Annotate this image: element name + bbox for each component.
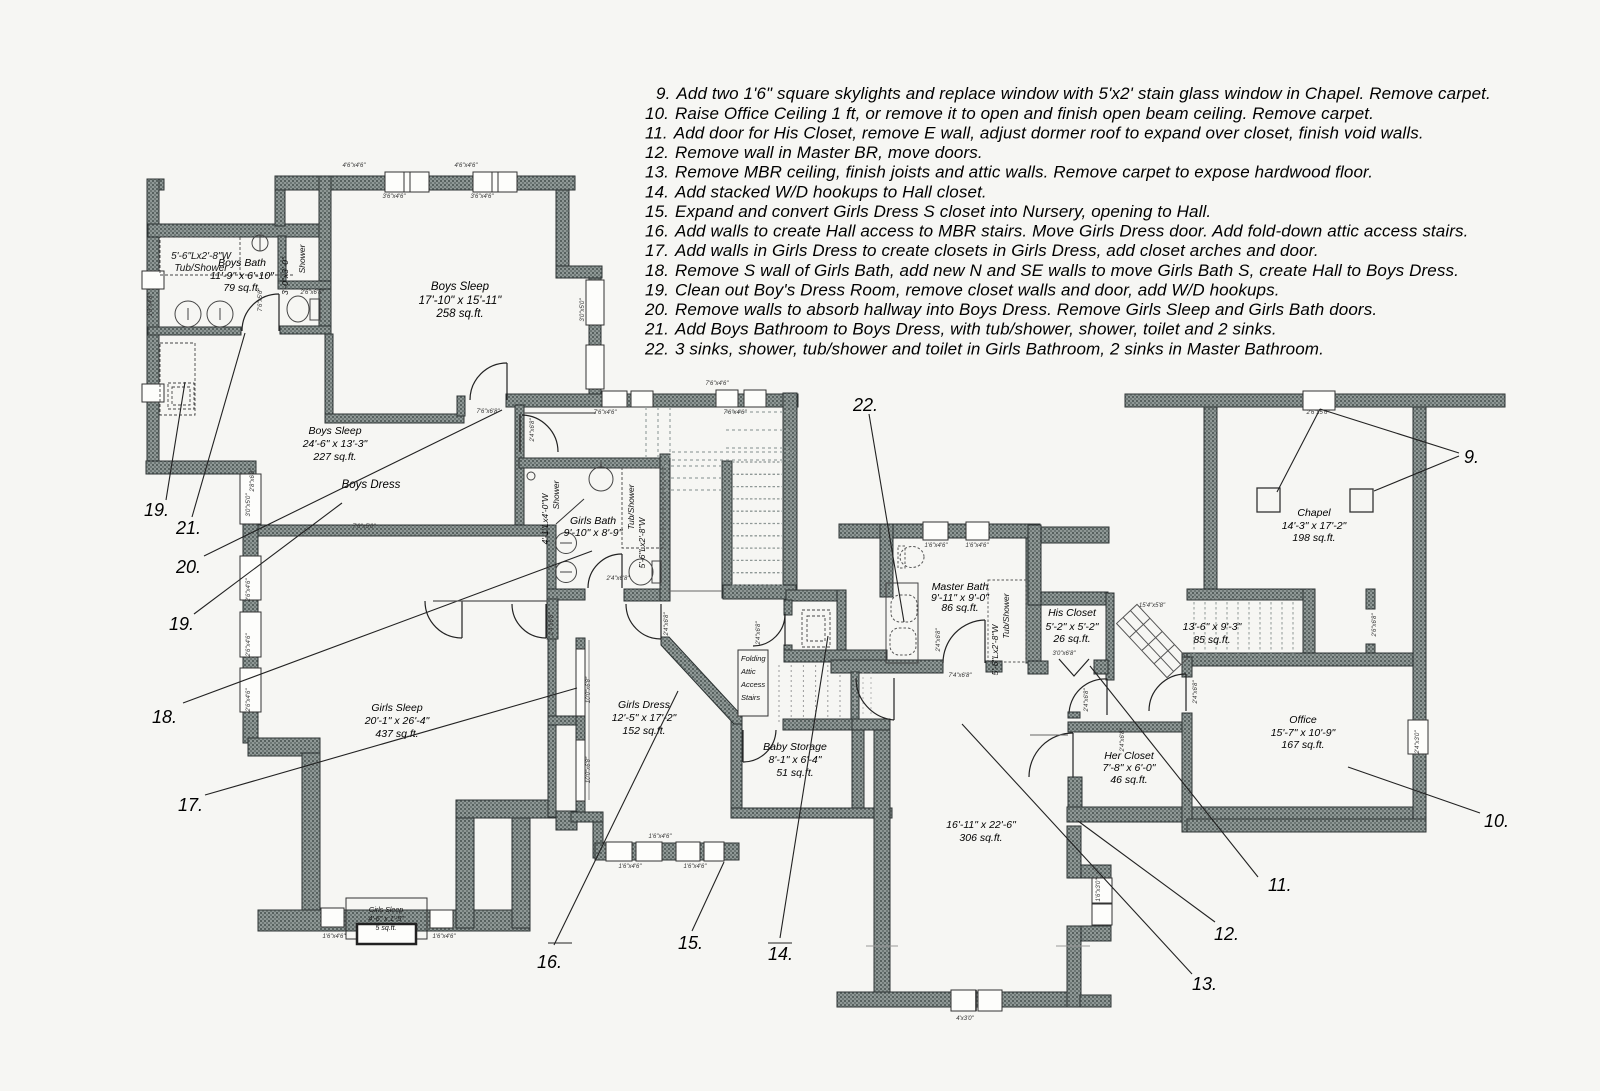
svg-text:7'6"x4'6": 7'6"x4'6" [706, 381, 730, 387]
svg-text:437 sq.ft.: 437 sq.ft. [375, 728, 418, 740]
svg-text:1'6"x3'0": 1'6"x3'0" [1096, 878, 1102, 902]
svg-text:15.Expand and convert Girls Dr: 15.Expand and convert Girls Dress S clos… [645, 202, 1211, 221]
svg-text:85 sq.ft.: 85 sq.ft. [1193, 634, 1230, 646]
svg-text:152 sq.ft.: 152 sq.ft. [622, 725, 665, 737]
svg-text:10.Raise Office Ceiling 1 ft,: 10.Raise Office Ceiling 1 ft, or remove … [645, 104, 1374, 123]
svg-text:19.: 19. [169, 614, 194, 634]
svg-text:1'6"x4'6": 1'6"x4'6" [433, 934, 457, 940]
svg-text:18.: 18. [152, 707, 177, 727]
svg-text:3'0"x5'0": 3'0"x5'0" [580, 298, 586, 322]
svg-text:16.: 16. [537, 952, 562, 972]
svg-text:16'-11" x 22'-6": 16'-11" x 22'-6" [946, 819, 1017, 831]
svg-text:2'4"x6'8": 2'4"x6'8" [549, 612, 555, 637]
svg-text:2'8"x6'8": 2'8"x6'8" [250, 468, 256, 493]
svg-text:Her Closet: Her Closet [1104, 750, 1155, 762]
svg-text:22.: 22. [852, 395, 878, 415]
svg-text:15'-7" x 10'-9": 15'-7" x 10'-9" [1271, 727, 1337, 739]
svg-text:7'6"x5'0": 7'6"x5'0" [353, 524, 377, 530]
svg-text:4'6"x4'6": 4'6"x4'6" [343, 163, 367, 169]
svg-text:Shower: Shower [297, 243, 307, 273]
svg-text:14.Add stacked W/D hookups to: 14.Add stacked W/D hookups to Hall close… [645, 182, 987, 201]
svg-text:20.: 20. [175, 557, 201, 577]
svg-text:13.: 13. [1192, 974, 1217, 994]
svg-text:21.: 21. [175, 518, 201, 538]
svg-text:7'6"x5'6": 7'6"x5'6" [258, 288, 264, 312]
svg-text:2'6"x4'6": 2'6"x4'6" [246, 633, 252, 658]
svg-text:1'6"x4'6": 1'6"x4'6" [925, 543, 949, 549]
svg-text:21.Add Boys Bathroom to Boys D: 21.Add Boys Bathroom to Boys Dress, with… [644, 320, 1277, 339]
svg-text:1'6"x4'6": 1'6"x4'6" [323, 934, 347, 940]
svg-text:2'6"x4'6": 2'6"x4'6" [246, 578, 252, 603]
svg-text:Tub/Shower: Tub/Shower [1001, 592, 1011, 638]
svg-text:Girls Dress: Girls Dress [618, 699, 671, 711]
svg-text:Shower: Shower [551, 479, 561, 509]
svg-text:1'6"x4'6": 1'6"x4'6" [649, 834, 673, 840]
svg-text:2'6"x6'8": 2'6"x6'8" [300, 290, 325, 296]
svg-text:86 sq.ft.: 86 sq.ft. [941, 602, 978, 614]
svg-text:2'6"x4'6": 2'6"x4'6" [246, 688, 252, 713]
svg-text:14.: 14. [768, 944, 793, 964]
svg-text:Girls Sleep: Girls Sleep [371, 702, 423, 714]
svg-text:20'-1" x 26'-4": 20'-1" x 26'-4" [364, 715, 431, 727]
svg-text:2'4"x6'8": 2'4"x6'8" [664, 612, 670, 637]
svg-text:19.: 19. [144, 500, 169, 520]
svg-text:Girls Sleep: Girls Sleep [369, 907, 403, 914]
svg-text:2'4"x6'8": 2'4"x6'8" [1084, 688, 1090, 713]
svg-text:Office: Office [1289, 714, 1317, 726]
svg-text:3'0"x6'8": 3'0"x6'8" [1053, 651, 1077, 657]
svg-text:258 sq.ft.: 258 sq.ft. [435, 308, 483, 320]
svg-text:1'6"x4'6": 1'6"x4'6" [684, 864, 708, 870]
svg-text:Boys Dress: Boys Dress [342, 479, 401, 491]
svg-text:9.: 9. [1464, 447, 1479, 467]
svg-text:17.Add walls in Girls Dress to: 17.Add walls in Girls Dress to create cl… [645, 241, 1319, 260]
svg-text:Tub/Shower: Tub/Shower [626, 483, 636, 529]
svg-text:167 sq.ft.: 167 sq.ft. [1281, 739, 1324, 751]
svg-text:227 sq.ft.: 227 sq.ft. [312, 451, 356, 463]
svg-text:Tub/Shower: Tub/Shower [174, 263, 228, 274]
svg-text:198 sq.ft.: 198 sq.ft. [1292, 532, 1335, 544]
svg-text:2'4"x6'8": 2'4"x6'8" [1193, 680, 1199, 705]
svg-text:Access: Access [740, 680, 765, 689]
svg-text:3'0"x5'0": 3'0"x5'0" [246, 493, 252, 517]
svg-text:7'6"x4'6": 7'6"x4'6" [594, 410, 618, 416]
svg-text:9'-10" x 8'-9": 9'-10" x 8'-9" [564, 527, 624, 539]
svg-text:13.Remove MBR ceiling, finish: 13.Remove MBR ceiling, finish joists and… [645, 163, 1373, 182]
svg-text:9.Add two 1'6" square skylight: 9.Add two 1'6" square skylights and repl… [656, 84, 1491, 103]
svg-text:15.: 15. [678, 933, 703, 953]
svg-text:2'4"x6'8": 2'4"x6'8" [606, 576, 631, 582]
svg-text:24'-6" x 13'-3": 24'-6" x 13'-3" [302, 438, 369, 450]
svg-text:3'6"x4'6": 3'6"x4'6" [471, 194, 495, 200]
svg-text:16.Add walls to create Hall ac: 16.Add walls to create Hall access to MB… [645, 222, 1469, 241]
svg-text:5'-6"Lx2'-8"W: 5'-6"Lx2'-8"W [171, 251, 232, 262]
svg-text:7'-8" x 6'-0": 7'-8" x 6'-0" [1103, 762, 1157, 774]
svg-text:4'-1"Lx4'-0"W: 4'-1"Lx4'-0"W [540, 493, 550, 545]
svg-text:1'6"x4'6": 1'6"x4'6" [148, 293, 154, 317]
svg-text:26 sq.ft.: 26 sq.ft. [1052, 633, 1090, 645]
svg-text:Chapel: Chapel [1297, 507, 1331, 519]
svg-text:19.Clean out Boy's Dress Room,: 19.Clean out Boy's Dress Room, remove cl… [645, 280, 1280, 299]
svg-text:11.Add door for His Closet, re: 11.Add door for His Closet, remove E wal… [645, 123, 1424, 142]
svg-text:5'-6"Lx2'-8"W: 5'-6"Lx2'-8"W [990, 624, 1000, 676]
svg-text:Attic: Attic [740, 667, 756, 676]
svg-text:22.3 sinks, shower, tub/shower: 22.3 sinks, shower, tub/shower and toile… [644, 339, 1324, 358]
svg-text:7'6"x4'6": 7'6"x4'6" [724, 410, 748, 416]
svg-text:17'-10" x 15'-11": 17'-10" x 15'-11" [419, 295, 503, 307]
svg-text:3'-0"x3'-0": 3'-0"x3'-0" [280, 256, 290, 295]
svg-text:17.: 17. [178, 795, 203, 815]
svg-text:Boys Sleep: Boys Sleep [431, 281, 490, 293]
svg-text:8'-1" x 6'-4": 8'-1" x 6'-4" [769, 754, 823, 766]
svg-text:His Closet: His Closet [1048, 607, 1097, 619]
svg-text:5 sq.ft.: 5 sq.ft. [375, 925, 396, 932]
svg-text:Folding: Folding [741, 654, 766, 663]
svg-text:2'4"x3'0": 2'4"x3'0" [1415, 730, 1421, 755]
svg-text:Stairs: Stairs [741, 693, 760, 702]
svg-text:4'6"x4'6": 4'6"x4'6" [455, 163, 479, 169]
svg-text:18.Remove S wall of Girls Bath: 18.Remove S wall of Girls Bath, add new … [645, 261, 1459, 280]
svg-text:15'4"x5'8": 15'4"x5'8" [1139, 603, 1166, 609]
svg-text:Baby Storage: Baby Storage [763, 741, 827, 753]
svg-text:306 sq.ft.: 306 sq.ft. [959, 832, 1002, 844]
svg-text:5'-2" x 5'-2": 5'-2" x 5'-2" [1046, 621, 1100, 633]
svg-text:Boys Sleep: Boys Sleep [308, 425, 361, 437]
svg-text:13'-6" x 9'-3": 13'-6" x 9'-3" [1183, 621, 1243, 633]
svg-text:46 sq.ft.: 46 sq.ft. [1110, 774, 1147, 786]
svg-text:2'4"x6'8": 2'4"x6'8" [936, 628, 942, 653]
svg-text:3'6"x4'6": 3'6"x4'6" [383, 194, 407, 200]
svg-text:2'6"x6'8": 2'6"x6'8" [1372, 613, 1378, 638]
svg-text:12.: 12. [1214, 924, 1239, 944]
svg-text:11.: 11. [1268, 875, 1292, 895]
svg-text:10.: 10. [1484, 811, 1509, 831]
svg-text:14'-3" x 17'-2": 14'-3" x 17'-2" [1282, 520, 1348, 532]
svg-text:4'-6" x 1'-5": 4'-6" x 1'-5" [368, 916, 404, 923]
svg-text:12.Remove wall in Master BR, m: 12.Remove wall in Master BR, move doors. [645, 143, 983, 162]
svg-text:2'4"x6'8": 2'4"x6'8" [756, 621, 762, 646]
svg-text:12'-5" x 17'-2": 12'-5" x 17'-2" [612, 712, 678, 724]
svg-text:1'6"x4'6": 1'6"x4'6" [619, 864, 643, 870]
svg-text:20.Remove walls to absorb hall: 20.Remove walls to absorb hallway into B… [644, 300, 1377, 319]
svg-text:7'4"x6'8": 7'4"x6'8" [949, 673, 973, 679]
svg-text:1'6"x4'6": 1'6"x4'6" [966, 543, 990, 549]
svg-text:Girls Bath: Girls Bath [570, 515, 616, 527]
svg-text:4'x3'0": 4'x3'0" [956, 1016, 974, 1022]
svg-text:2'4"x6'8": 2'4"x6'8" [530, 418, 536, 443]
svg-text:5'-6"Lx2'-8"W: 5'-6"Lx2'-8"W [637, 517, 647, 569]
svg-text:2'4"x6'8": 2'4"x6'8" [1120, 728, 1126, 753]
svg-text:51 sq.ft.: 51 sq.ft. [776, 767, 813, 779]
svg-text:79 sq.ft.: 79 sq.ft. [223, 282, 260, 294]
